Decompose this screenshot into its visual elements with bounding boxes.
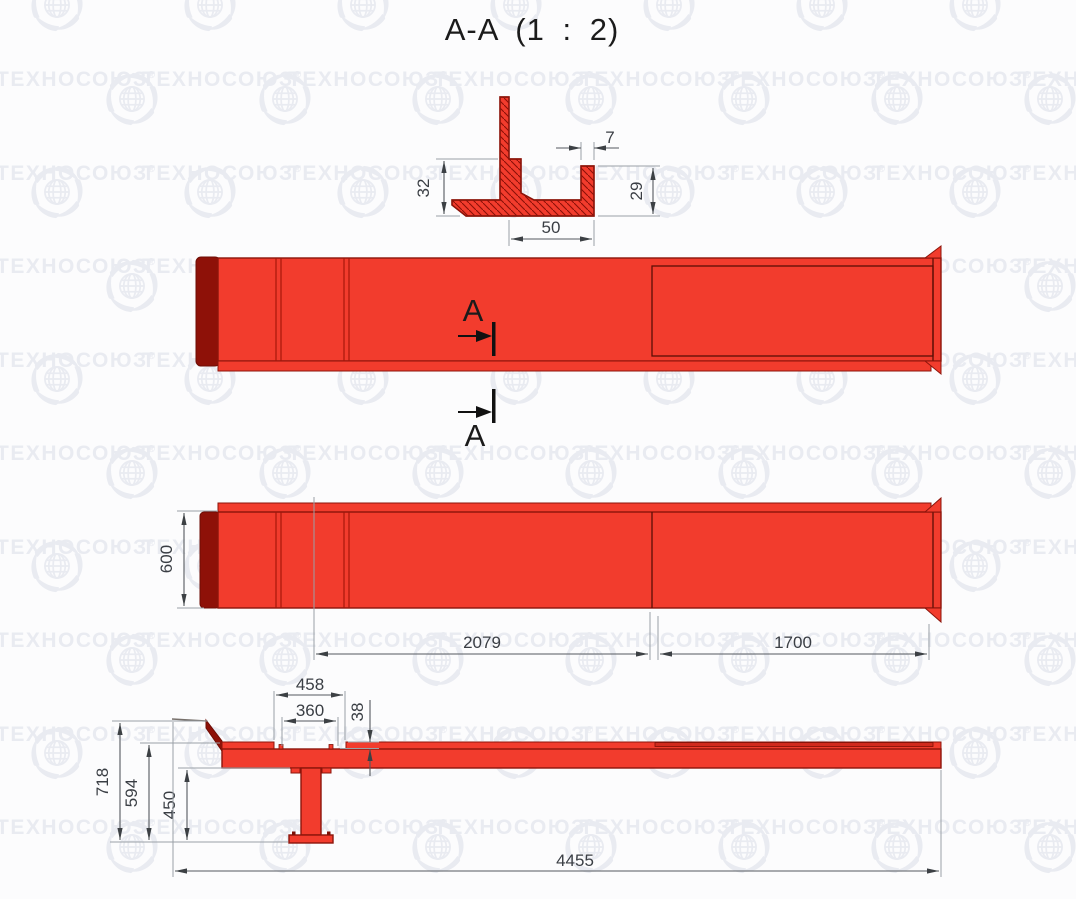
ramp-tip-bottom: [925, 608, 941, 622]
svg-text:2079: 2079: [463, 633, 501, 652]
top-channel-recess: [655, 743, 933, 747]
beam-body: [218, 258, 941, 361]
svg-text:718: 718: [93, 768, 112, 796]
svg-text:600: 600: [157, 545, 176, 573]
beam-bar: [222, 749, 941, 768]
beam-body: [218, 512, 941, 608]
technical-drawing: A-A (1 : 2) 32 7: [0, 0, 1076, 899]
section-hatch: [452, 97, 594, 216]
svg-text:50: 50: [542, 218, 561, 237]
svg-text:458: 458: [296, 675, 324, 694]
ramp-tip-plate: [206, 720, 222, 751]
side-elevation-view: 458 360 38 718: [93, 675, 941, 877]
svg-text:1700: 1700: [774, 633, 812, 652]
beam-top-strip: [218, 503, 931, 512]
beam-bottom-strip: [218, 361, 931, 371]
svg-text:32: 32: [414, 179, 433, 198]
dimension-29: 29: [598, 166, 660, 216]
svg-text:450: 450: [160, 791, 179, 819]
section-view-a-a: 32 7 29 50: [414, 97, 660, 246]
ramp-tip-top: [925, 246, 941, 258]
dimension-50: 50: [509, 218, 594, 246]
view-title: A-A (1 : 2): [445, 12, 620, 47]
leg-base-plate: [289, 835, 333, 843]
leg-clip-right: [322, 768, 331, 773]
svg-text:29: 29: [627, 182, 646, 201]
svg-text:38: 38: [348, 703, 367, 722]
svg-text:4455: 4455: [556, 851, 594, 870]
leg-clip-left: [291, 768, 300, 773]
svg-text:A: A: [465, 418, 486, 453]
beam-end-cap: [196, 257, 220, 366]
dimension-360: 360: [282, 701, 338, 746]
drawing-canvas: ТЕХНОСОЮЗ®ТЕХНОСОЮЗ®ТЕХНОСОЮЗ®ТЕХНОСОЮЗ®…: [0, 0, 1076, 899]
dimension-450: 450: [160, 768, 290, 840]
support-leg: [301, 768, 321, 835]
top-plate-left: [222, 742, 274, 749]
dimension-1700: 1700: [658, 616, 929, 660]
dimension-7: 7: [556, 128, 619, 160]
top-plan-view: [196, 246, 941, 374]
bottom-plan-view: 600 2079 1700: [157, 497, 941, 660]
svg-text:360: 360: [296, 701, 324, 720]
beam-end-cap: [200, 512, 220, 608]
svg-text:7: 7: [605, 128, 614, 147]
section-marker-bottom: A: [458, 389, 496, 453]
svg-text:594: 594: [122, 779, 141, 807]
svg-text:A: A: [463, 293, 484, 328]
